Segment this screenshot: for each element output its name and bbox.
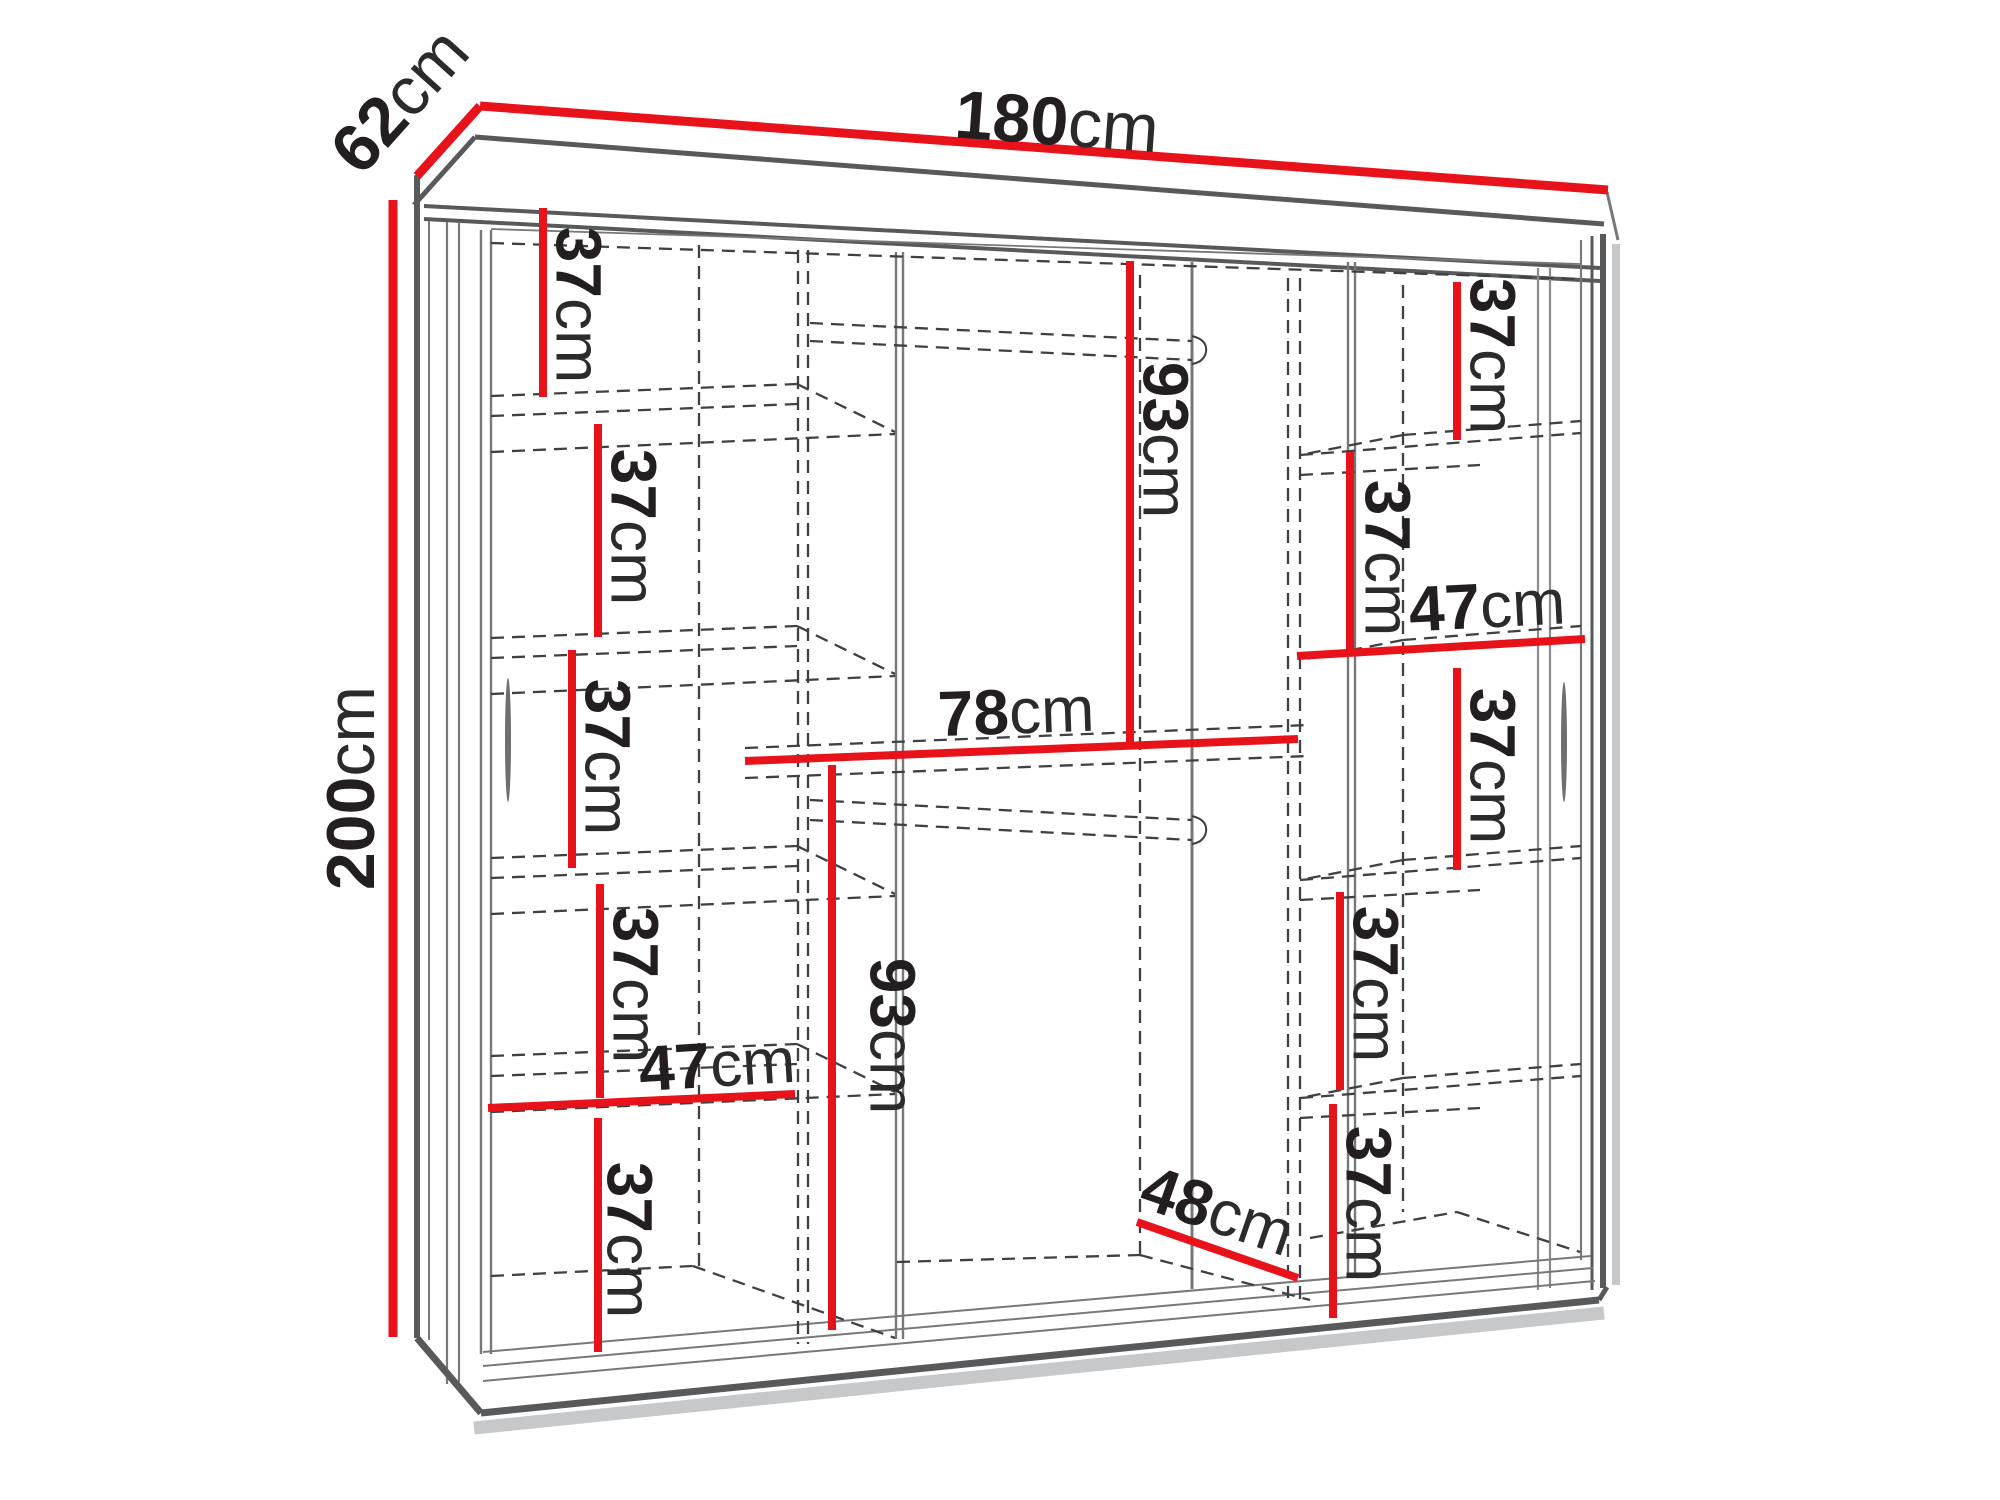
dimension-label-right-shelf-3-37: 37cm	[1457, 688, 1529, 845]
hidden-edge	[797, 626, 895, 674]
hidden-edge	[1300, 465, 1480, 475]
hidden-edge	[693, 1266, 895, 1338]
hidden-edge	[1300, 1108, 1480, 1118]
hanging-rod-end	[1192, 336, 1206, 364]
dimension-label-center-width-78: 78cm	[937, 673, 1096, 750]
hidden-edge	[810, 800, 1192, 820]
hidden-edge	[1457, 1212, 1580, 1252]
dimension-label-left-shelf-3-37: 37cm	[572, 679, 644, 836]
dimension-label-left-shelf-1-37: 37cm	[543, 227, 615, 384]
hidden-edge	[797, 846, 895, 894]
structure-line	[1607, 192, 1618, 240]
dimension-label-right-shelf-1-37: 37cm	[1457, 278, 1529, 435]
dimension-label-right-shelf-5-37: 37cm	[1333, 1126, 1405, 1283]
hidden-edge	[491, 676, 895, 694]
diagram-canvas: 180cm62cm200cm37cm37cm37cm37cm37cm47cm93…	[0, 0, 2000, 1500]
door-handle-icon	[505, 678, 511, 802]
dimension-label-depth-62: 62cm	[316, 13, 484, 187]
hidden-edge	[797, 384, 895, 432]
hidden-edge	[897, 1255, 1140, 1262]
dimension-label-width-180: 180cm	[952, 76, 1161, 167]
dimension-label-right-width-47: 47cm	[1407, 565, 1567, 645]
dimension-label-left-shelf-5-37: 37cm	[594, 1162, 666, 1319]
hidden-edge	[491, 434, 895, 452]
hidden-edge	[810, 323, 1192, 341]
door-handle-icon	[1561, 682, 1567, 802]
structure-line	[1599, 1287, 1607, 1300]
dimension-label-center-lower-93: 93cm	[857, 958, 929, 1115]
wardrobe-diagram: 180cm62cm200cm37cm37cm37cm37cm37cm47cm93…	[0, 0, 2000, 1500]
hidden-edge	[491, 384, 797, 396]
hanging-rod-end	[1192, 816, 1206, 844]
dimension-label-left-width-47: 47cm	[637, 1024, 798, 1105]
hidden-edge	[810, 341, 1192, 360]
structure-line	[417, 1338, 481, 1413]
hidden-edge	[491, 626, 797, 638]
dimension-label-left-shelf-2-37: 37cm	[598, 449, 670, 606]
hidden-edge	[491, 404, 797, 416]
hidden-edge	[1403, 1064, 1581, 1078]
hidden-edge	[1300, 890, 1480, 900]
hidden-edge	[491, 866, 797, 878]
structure-line	[491, 229, 1581, 264]
dimension-label-center-upper-93: 93cm	[1130, 362, 1202, 519]
hidden-edge	[491, 243, 1581, 279]
hidden-edge	[1403, 846, 1581, 860]
dimension-label-height-200: 200cm	[313, 686, 389, 890]
hidden-edge	[810, 820, 1192, 840]
hidden-edge	[491, 646, 797, 658]
dimension-label-right-shelf-4-37: 37cm	[1340, 906, 1412, 1063]
hidden-edge	[491, 846, 797, 858]
